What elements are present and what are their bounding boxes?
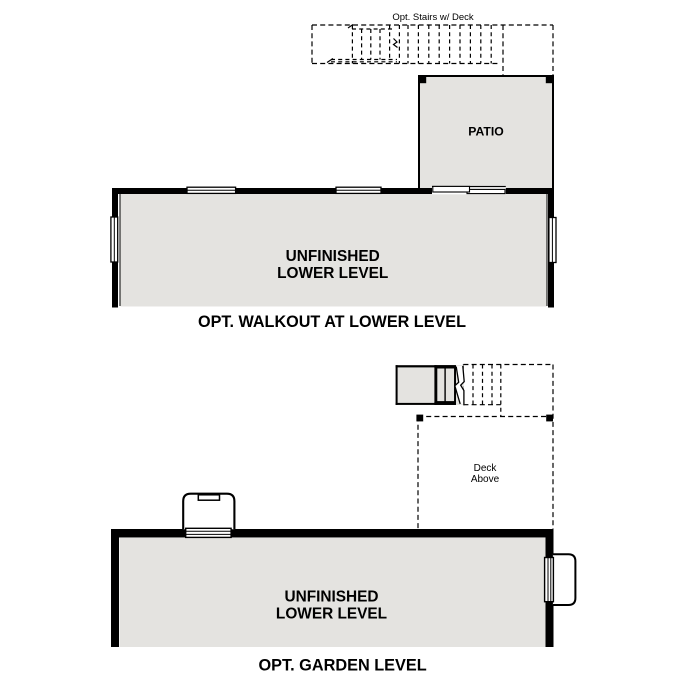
svg-text:Deck: Deck	[474, 463, 498, 474]
svg-text:LOWER LEVEL: LOWER LEVEL	[277, 265, 388, 282]
svg-text:OPT. GARDEN LEVEL: OPT. GARDEN LEVEL	[258, 657, 426, 675]
svg-text:UNFINISHED: UNFINISHED	[286, 248, 380, 265]
svg-text:Above: Above	[471, 474, 500, 485]
svg-text:UNFINISHED: UNFINISHED	[284, 588, 378, 605]
svg-text:LOWER LEVEL: LOWER LEVEL	[276, 606, 387, 623]
svg-text:PATIO: PATIO	[468, 125, 503, 139]
svg-text:Opt. Stairs w/ Deck: Opt. Stairs w/ Deck	[392, 12, 474, 23]
svg-text:OPT. WALKOUT AT LOWER LEVEL: OPT. WALKOUT AT LOWER LEVEL	[198, 313, 466, 331]
